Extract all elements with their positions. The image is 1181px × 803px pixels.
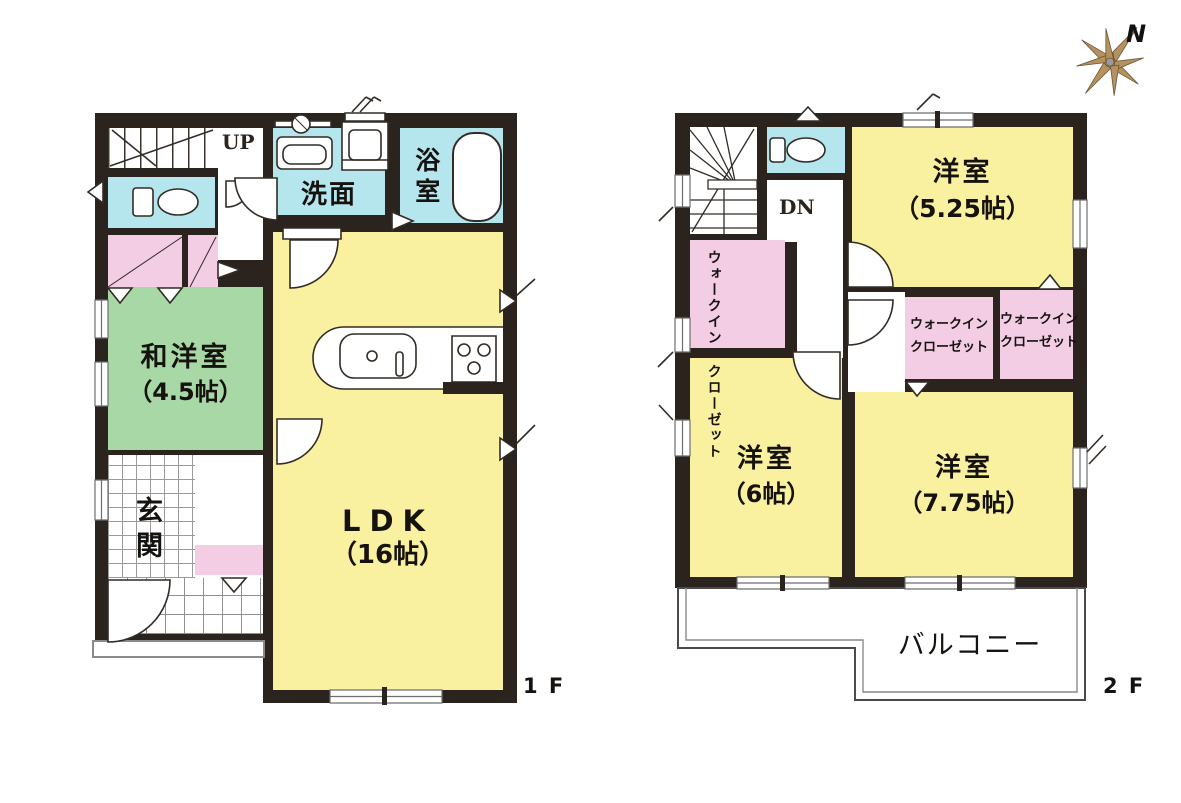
ldk-name: LDK [273,505,503,538]
staircase-2f [690,127,757,234]
wic-vertical-line1: ウォークイン [706,250,722,346]
floor1-label: 1 F [523,674,565,698]
genkan-label: 玄関 [131,488,162,574]
balcony-label: バルコニー [855,630,1085,661]
porch-step [92,640,265,658]
room-bedroom-775 [855,392,1073,577]
hall-2f-doorway [848,292,905,392]
ldk-size: （16帖） [273,541,503,571]
bedroom775-size: （7.75帖） [855,490,1073,518]
wic-right-line2: クローゼット [1000,331,1073,354]
bathroom-label: 浴室 [411,136,440,220]
closet-1f-right [188,235,218,287]
closet-1f-left [108,235,182,287]
bathtub-icon [452,132,502,222]
wic-right-line1: ウォークイン [1000,308,1073,331]
compass-north-label: N [1126,20,1146,48]
compass-icon: N [1068,10,1168,110]
room-ldk [273,232,503,690]
hall-2f-lower [797,242,843,358]
wic-center-line2: クローゼット [905,336,993,359]
entrance-porch [108,578,263,634]
wic-vertical-label: ウォークイン クローゼット [700,250,727,342]
wic-center-label: ウォークイン クローゼット [905,313,993,360]
floorplan-canvas: N UP 洗面 浴室 玄関 和洋室 （4.5帖） LDK （16帖） 1 F D… [0,0,1181,803]
room-toilet-1f [108,177,215,228]
staircase-1f [108,128,218,168]
bedroom775-name: 洋室 [855,454,1073,484]
floor2-label: 2 F [1103,674,1145,698]
wic-right-label: ウォークイン クローゼット [1000,308,1073,355]
senmen-label: 洗面 [273,181,385,211]
genkan-closet [195,545,263,575]
stairs-up-label: UP [222,131,254,154]
bedroom525-size: （5.25帖） [852,195,1073,224]
bedroom6-name: 洋室 [690,445,842,475]
room-toilet-2f [767,127,845,173]
stairs-dn-label: DN [779,196,815,219]
bedroom6-size: （6帖） [690,481,842,509]
washitsu-size: （4.5帖） [108,379,263,407]
floor1-exterior-cutout [95,658,263,703]
bedroom525-name: 洋室 [852,157,1073,188]
washitsu-name: 和洋室 [108,342,263,373]
wic-center-line1: ウォークイン [905,313,993,336]
